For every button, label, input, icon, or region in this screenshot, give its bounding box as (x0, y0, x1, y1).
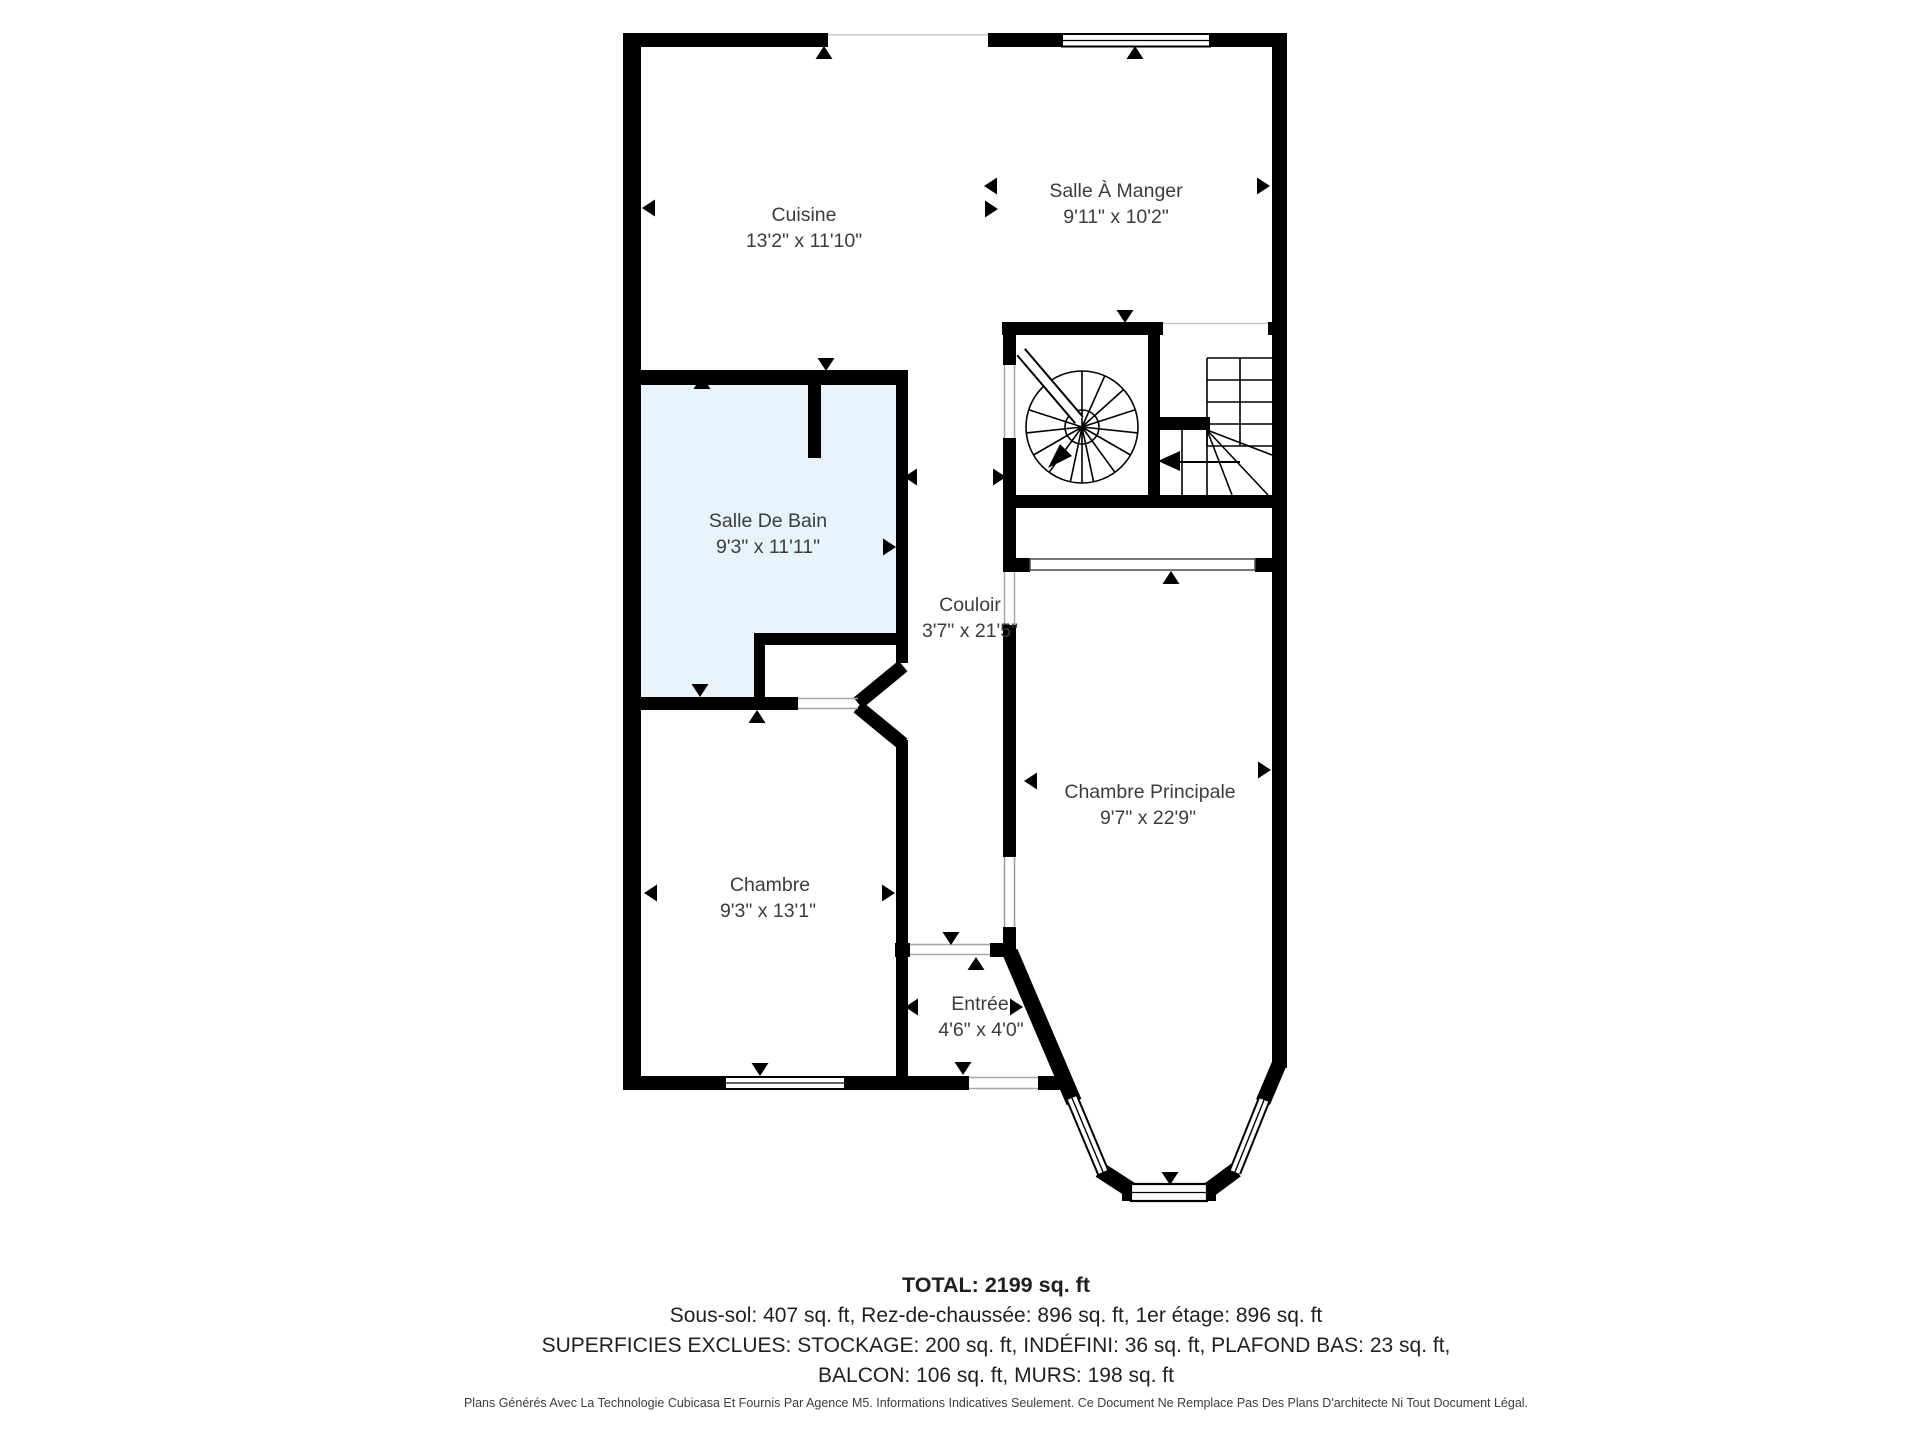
summary-excluded-1: SUPERFICIES EXCLUES: STOCKAGE: 200 sq. f… (36, 1331, 1920, 1361)
summary-excluded-2: BALCON: 106 sq. ft, MURS: 198 sq. ft (36, 1361, 1920, 1391)
room-dims-salle-de-bain: 9'3" x 11'11" (716, 536, 820, 558)
disclaimer-text: Plans Générés Avec La Technologie Cubica… (36, 1396, 1920, 1410)
direction-arrow-icon (1258, 762, 1271, 779)
summary-total: TOTAL: 2199 sq. ft (36, 1270, 1920, 1300)
direction-arrow-icon (985, 201, 998, 218)
direction-arrow-icon (749, 710, 766, 723)
direction-arrow-icon (882, 885, 895, 902)
direction-arrow-icon (818, 358, 835, 371)
direction-arrow-icon (1117, 310, 1134, 323)
room-dims-entree: 4'6" x 4'0" (938, 1019, 1023, 1041)
direction-arrow-icon (1127, 46, 1144, 59)
spiral-staircase (1021, 352, 1138, 483)
room-dims-chambre-principale: 9'7" x 22'9" (1100, 807, 1196, 829)
direction-arrow-icon (943, 932, 960, 945)
room-label-couloir: Couloir (939, 594, 1001, 616)
bay-right-window (1235, 1100, 1264, 1172)
direction-arrow-icon (642, 200, 655, 217)
room-dims-chambre: 9'3" x 13'1" (720, 900, 816, 922)
direction-arrow-icon (968, 957, 985, 970)
bay-left-window (1072, 1098, 1103, 1172)
room-label-entree: Entrée (951, 993, 1008, 1015)
floor-plan-drawing: Cuisine 13'2" x 11'10" Salle À Manger 9'… (0, 0, 1920, 1440)
room-label-salle-de-bain: Salle De Bain (709, 510, 827, 532)
summary-floors: Sous-sol: 407 sq. ft, Rez-de-chaussée: 8… (36, 1301, 1920, 1331)
stair-direction-arrow-icon (1158, 451, 1180, 471)
direction-arrow-icon (1024, 773, 1037, 790)
direction-arrow-icon (1163, 571, 1180, 584)
room-label-salle-a-manger: Salle À Manger (1049, 179, 1183, 202)
room-label-chambre: Chambre (730, 874, 810, 896)
direction-arrow-icon (955, 1062, 972, 1075)
floor-plan-page: Cuisine 13'2" x 11'10" Salle À Manger 9'… (0, 0, 1920, 1440)
direction-arrow-icon (984, 178, 997, 195)
direction-arrow-icon (644, 885, 657, 902)
direction-arrow-icon (1010, 999, 1023, 1016)
direction-arrow-icon (1257, 178, 1270, 195)
room-label-chambre-principale: Chambre Principale (1064, 781, 1235, 803)
room-dims-cuisine: 13'2" x 11'10" (746, 230, 862, 252)
interior-opening (1030, 559, 1255, 570)
direction-arrow-icon (752, 1063, 769, 1076)
room-label-cuisine: Cuisine (771, 204, 836, 226)
spiral-stair-arrow-icon (1048, 444, 1072, 468)
room-dims-couloir: 3'7" x 21'5" (922, 620, 1018, 642)
direction-arrow-icon (816, 46, 833, 59)
room-dims-salle-a-manger: 9'11" x 10'2" (1063, 206, 1169, 228)
